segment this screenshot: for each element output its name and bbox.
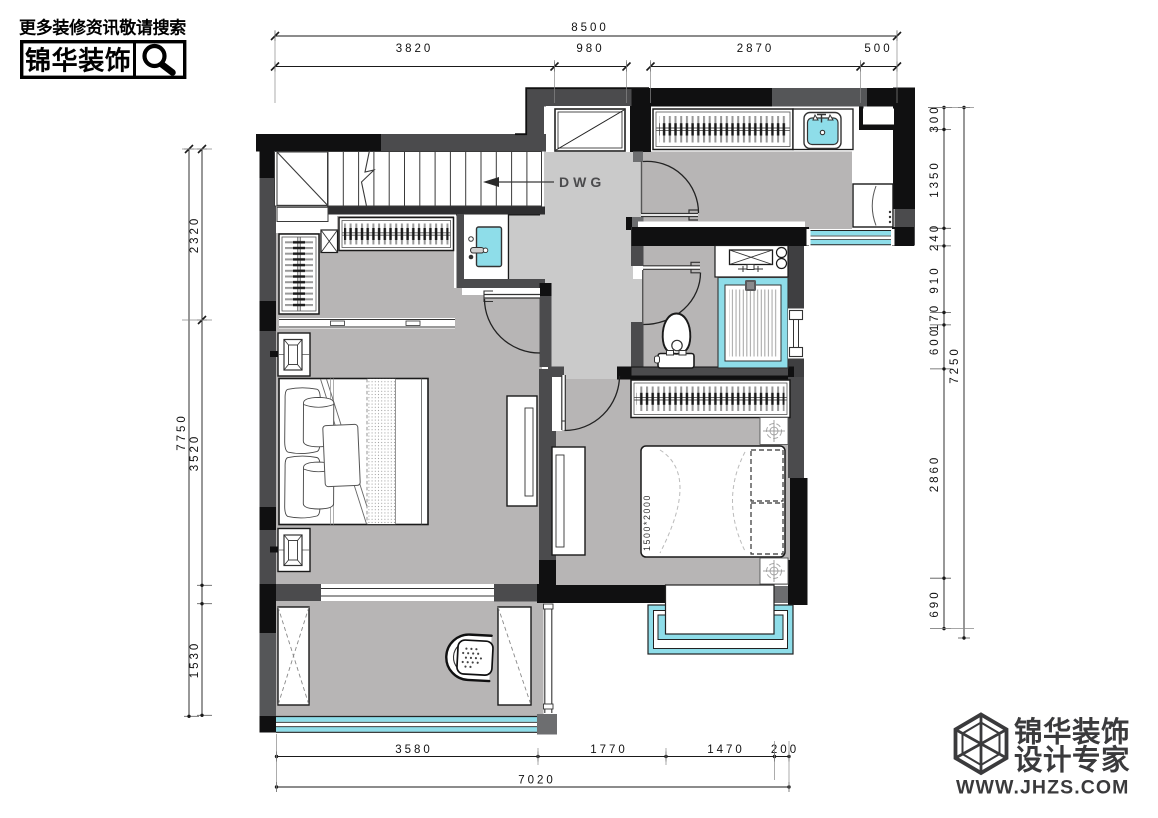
- svg-text:7750: 7750: [176, 413, 188, 451]
- svg-text:3580: 3580: [395, 744, 433, 756]
- svg-text:300: 300: [929, 104, 941, 132]
- svg-text:1530: 1530: [189, 641, 201, 679]
- svg-text:500: 500: [864, 43, 892, 55]
- svg-text:2860: 2860: [929, 455, 941, 493]
- svg-text:2320: 2320: [189, 216, 201, 254]
- svg-text:设计专家: 设计专家: [1014, 744, 1130, 777]
- svg-text:8500: 8500: [571, 22, 609, 34]
- svg-text:1350: 1350: [929, 160, 941, 198]
- svg-text:7020: 7020: [518, 775, 556, 787]
- svg-text:更多装修资讯敬请搜索: 更多装修资讯敬请搜索: [19, 18, 186, 38]
- svg-text:1770: 1770: [590, 744, 628, 756]
- svg-text:200: 200: [771, 744, 799, 756]
- svg-text:980: 980: [576, 43, 604, 55]
- svg-text:2870: 2870: [737, 43, 775, 55]
- svg-text:910: 910: [929, 265, 941, 293]
- svg-text:240: 240: [929, 223, 941, 251]
- svg-text:锦华装饰: 锦华装饰: [25, 46, 131, 76]
- svg-text:WWW.JHZS.COM: WWW.JHZS.COM: [956, 777, 1130, 799]
- svg-text:1470: 1470: [707, 744, 745, 756]
- svg-text:3520: 3520: [189, 434, 201, 472]
- svg-text:7250: 7250: [949, 346, 961, 384]
- svg-text:690: 690: [929, 589, 941, 617]
- svg-text:170: 170: [929, 303, 941, 331]
- svg-text:1500*2000: 1500*2000: [642, 494, 652, 551]
- svg-text:600: 600: [929, 327, 941, 355]
- svg-text:DWG: DWG: [559, 174, 605, 190]
- svg-text:3820: 3820: [396, 43, 434, 55]
